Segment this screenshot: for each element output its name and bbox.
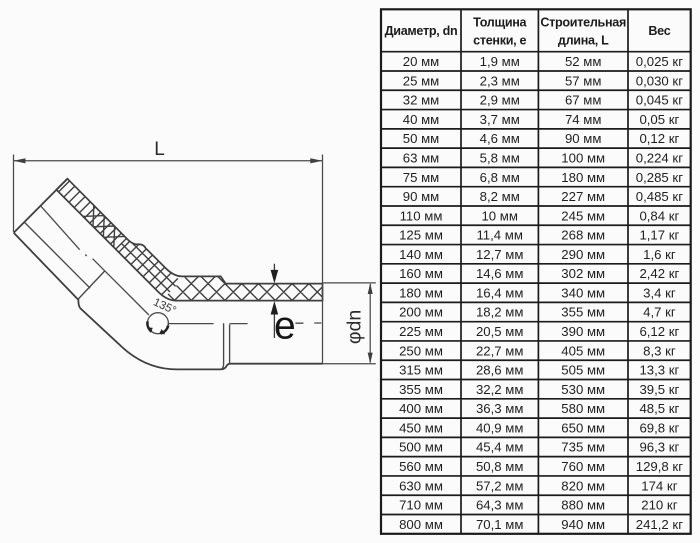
- svg-text:48,5 кг: 48,5 кг: [639, 401, 679, 416]
- svg-text:32,2 мм: 32,2 мм: [476, 382, 523, 397]
- svg-text:735 мм: 735 мм: [561, 440, 605, 455]
- svg-text:0,045 кг: 0,045 кг: [636, 93, 683, 108]
- svg-text:530 мм: 530 мм: [561, 382, 605, 397]
- svg-text:20 мм: 20 мм: [403, 54, 439, 69]
- svg-text:650 мм: 650 мм: [561, 420, 605, 435]
- svg-text:L: L: [154, 139, 165, 160]
- svg-text:32 мм: 32 мм: [403, 93, 439, 108]
- svg-text:129,8 кг: 129,8 кг: [636, 459, 683, 474]
- svg-text:315 мм: 315 мм: [399, 363, 443, 378]
- svg-text:1,9 мм: 1,9 мм: [480, 54, 520, 69]
- svg-text:10 мм: 10 мм: [481, 208, 517, 223]
- svg-text:50 мм: 50 мм: [403, 131, 439, 146]
- svg-text:Вес: Вес: [648, 24, 670, 38]
- svg-text:13,3 кг: 13,3 кг: [639, 363, 679, 378]
- svg-text:390 мм: 390 мм: [561, 324, 605, 339]
- svg-text:40 мм: 40 мм: [403, 112, 439, 127]
- svg-text:стенки, е: стенки, е: [473, 34, 526, 48]
- svg-text:Строительная: Строительная: [540, 16, 626, 30]
- svg-text:302 мм: 302 мм: [561, 266, 605, 281]
- svg-text:6,8 мм: 6,8 мм: [480, 170, 520, 185]
- svg-text:длина, L: длина, L: [558, 34, 609, 48]
- svg-text:0,285 кг: 0,285 кг: [636, 170, 683, 185]
- svg-text:800 мм: 800 мм: [399, 517, 443, 532]
- svg-text:69,8 кг: 69,8 кг: [639, 420, 679, 435]
- svg-text:405 мм: 405 мм: [561, 343, 605, 358]
- svg-text:φdn: φdn: [344, 310, 366, 344]
- svg-text:36,3 мм: 36,3 мм: [476, 401, 523, 416]
- svg-text:12,7 мм: 12,7 мм: [476, 247, 523, 262]
- svg-text:25 мм: 25 мм: [403, 73, 439, 88]
- svg-text:2,9 мм: 2,9 мм: [480, 93, 520, 108]
- svg-text:90 мм: 90 мм: [403, 189, 439, 204]
- svg-text:4,6 мм: 4,6 мм: [480, 131, 520, 146]
- svg-text:710 мм: 710 мм: [399, 498, 443, 513]
- svg-text:450 мм: 450 мм: [399, 420, 443, 435]
- svg-text:74 мм: 74 мм: [565, 112, 601, 127]
- svg-text:63 мм: 63 мм: [403, 150, 439, 165]
- svg-text:580 мм: 580 мм: [561, 401, 605, 416]
- svg-text:355 мм: 355 мм: [561, 305, 605, 320]
- svg-text:20,5 мм: 20,5 мм: [476, 324, 523, 339]
- svg-text:64,3 мм: 64,3 мм: [476, 498, 523, 513]
- svg-text:70,1 мм: 70,1 мм: [476, 517, 523, 532]
- svg-text:8,2 мм: 8,2 мм: [480, 189, 520, 204]
- svg-text:8,3 кг: 8,3 кг: [643, 343, 676, 358]
- svg-text:16,4 мм: 16,4 мм: [476, 285, 523, 300]
- svg-text:50,8 мм: 50,8 мм: [476, 459, 523, 474]
- svg-text:75 мм: 75 мм: [403, 170, 439, 185]
- svg-text:630 мм: 630 мм: [399, 478, 443, 493]
- svg-text:200 мм: 200 мм: [399, 305, 443, 320]
- svg-text:0,12 кг: 0,12 кг: [639, 131, 679, 146]
- svg-text:400 мм: 400 мм: [399, 401, 443, 416]
- svg-text:1,17 кг: 1,17 кг: [639, 228, 679, 243]
- svg-text:18,2 мм: 18,2 мм: [476, 305, 523, 320]
- svg-text:45,4 мм: 45,4 мм: [476, 440, 523, 455]
- svg-text:67 мм: 67 мм: [565, 93, 601, 108]
- svg-text:57 мм: 57 мм: [565, 73, 601, 88]
- svg-text:225 мм: 225 мм: [399, 324, 443, 339]
- svg-text:760 мм: 760 мм: [561, 459, 605, 474]
- svg-text:0,05 кг: 0,05 кг: [639, 112, 679, 127]
- svg-text:14,6 мм: 14,6 мм: [476, 266, 523, 281]
- svg-text:940 мм: 940 мм: [561, 517, 605, 532]
- svg-text:40,9 мм: 40,9 мм: [476, 420, 523, 435]
- svg-text:500 мм: 500 мм: [399, 440, 443, 455]
- svg-text:11,4 мм: 11,4 мм: [476, 228, 522, 243]
- svg-text:174 кг: 174 кг: [641, 478, 677, 493]
- svg-text:3,7 мм: 3,7 мм: [480, 112, 520, 127]
- svg-text:880 мм: 880 мм: [561, 498, 605, 513]
- svg-text:22,7 мм: 22,7 мм: [476, 343, 523, 358]
- svg-text:241,2 кг: 241,2 кг: [636, 517, 683, 532]
- svg-text:180 мм: 180 мм: [561, 170, 605, 185]
- svg-text:Толщина: Толщина: [473, 16, 527, 30]
- svg-text:96,3 кг: 96,3 кг: [639, 440, 679, 455]
- svg-text:52 мм: 52 мм: [565, 54, 601, 69]
- svg-text:6,12 кг: 6,12 кг: [639, 324, 679, 339]
- svg-text:28,6 мм: 28,6 мм: [476, 363, 523, 378]
- svg-text:140 мм: 140 мм: [399, 247, 443, 262]
- svg-text:820 мм: 820 мм: [561, 478, 605, 493]
- svg-text:39,5 кг: 39,5 кг: [639, 382, 679, 397]
- svg-text:245 мм: 245 мм: [561, 208, 605, 223]
- svg-text:560 мм: 560 мм: [399, 459, 443, 474]
- svg-text:e: e: [274, 305, 296, 348]
- svg-text:0,485 кг: 0,485 кг: [636, 189, 683, 204]
- svg-text:90 мм: 90 мм: [565, 131, 601, 146]
- svg-text:100 мм: 100 мм: [561, 150, 605, 165]
- svg-text:355 мм: 355 мм: [399, 382, 443, 397]
- svg-text:1,6 кг: 1,6 кг: [643, 247, 676, 262]
- svg-text:0,84 кг: 0,84 кг: [639, 208, 679, 223]
- svg-text:125 мм: 125 мм: [399, 228, 443, 243]
- svg-text:3,4 кг: 3,4 кг: [643, 285, 676, 300]
- svg-text:0,224 кг: 0,224 кг: [636, 150, 683, 165]
- svg-text:505 мм: 505 мм: [561, 363, 605, 378]
- svg-text:4,7 кг: 4,7 кг: [643, 305, 676, 320]
- svg-text:2,3 мм: 2,3 мм: [480, 73, 520, 88]
- svg-text:340 мм: 340 мм: [561, 285, 605, 300]
- svg-text:290 мм: 290 мм: [561, 247, 605, 262]
- svg-text:210 кг: 210 кг: [641, 498, 677, 513]
- svg-text:5,8 мм: 5,8 мм: [480, 150, 520, 165]
- svg-text:0,025 кг: 0,025 кг: [636, 54, 683, 69]
- svg-text:110 мм: 110 мм: [400, 208, 443, 223]
- svg-text:268 мм: 268 мм: [561, 228, 605, 243]
- svg-text:57,2 мм: 57,2 мм: [476, 478, 523, 493]
- svg-text:180 мм: 180 мм: [399, 285, 443, 300]
- svg-text:2,42 кг: 2,42 кг: [639, 266, 679, 281]
- svg-text:227 мм: 227 мм: [561, 189, 605, 204]
- svg-text:160 мм: 160 мм: [399, 266, 443, 281]
- svg-text:0,030 кг: 0,030 кг: [636, 73, 683, 88]
- svg-text:250 мм: 250 мм: [399, 343, 443, 358]
- svg-text:Диаметр, dn: Диаметр, dn: [385, 24, 458, 38]
